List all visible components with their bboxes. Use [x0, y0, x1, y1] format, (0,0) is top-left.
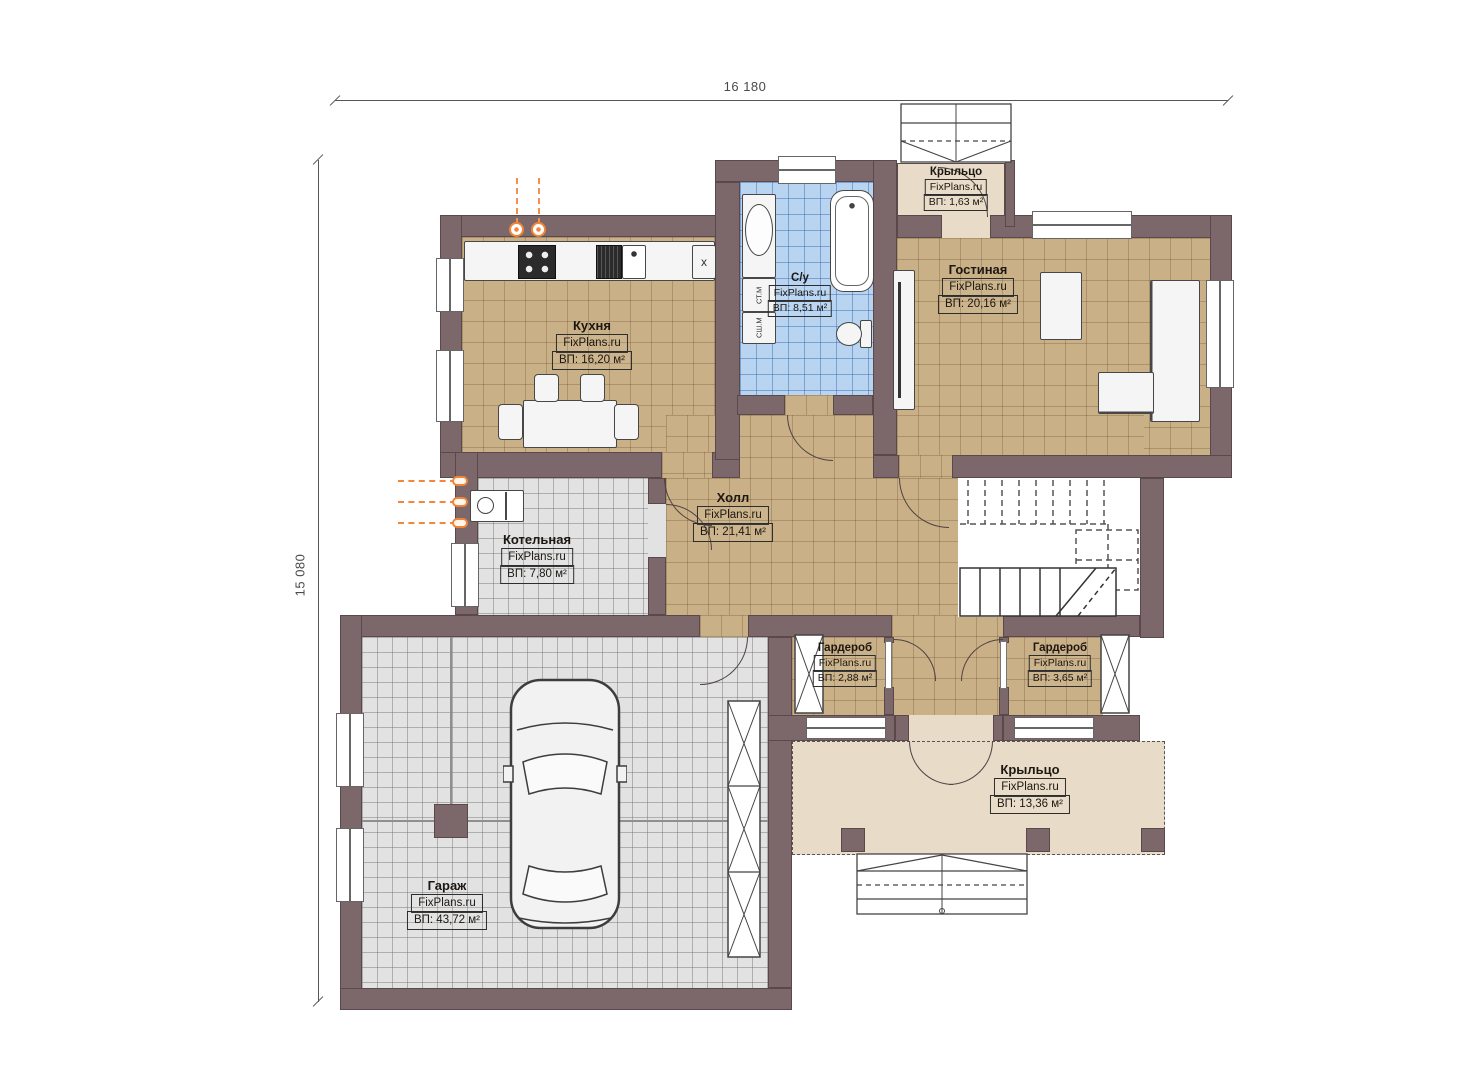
room-name: Крыльцо [930, 166, 982, 178]
wall [340, 615, 362, 1010]
window [436, 258, 464, 312]
dimension-height-label: 15 080 [293, 554, 308, 597]
watermark: FixPlans.ru [697, 506, 769, 525]
pendant-light [509, 222, 524, 237]
wall [1005, 160, 1015, 227]
room-name: Холл [717, 490, 750, 505]
wall [715, 182, 740, 460]
wall [440, 215, 737, 237]
window [806, 717, 886, 739]
porch-column [841, 828, 865, 852]
pendant-light-lead [516, 178, 518, 224]
room-name: Гостиная [949, 262, 1008, 277]
door-opening [785, 395, 833, 415]
sofa-chaise [1098, 372, 1154, 414]
boiler-dial [477, 497, 494, 514]
room-name: Гараж [428, 878, 467, 893]
watermark: FixPlans.ru [814, 655, 877, 672]
wall [768, 637, 792, 988]
room-area: ВП: 8,51 м² [768, 300, 832, 317]
pipe-socket [452, 518, 468, 528]
wall [884, 687, 894, 715]
sofa-section [1150, 280, 1200, 422]
bathtub-basin [835, 196, 869, 286]
counter-mark: x [701, 255, 707, 269]
pendant-light [531, 222, 546, 237]
room-label-wardrobe-right: Гардероб FixPlans.ru ВП: 3,65 м² [1028, 642, 1092, 687]
room-area: ВП: 13,36 м² [990, 795, 1070, 814]
chair [498, 404, 523, 440]
window [451, 543, 479, 607]
wall [993, 715, 1003, 741]
room-area: ВП: 7,80 м² [500, 565, 574, 584]
chair [534, 374, 559, 402]
toilet-bowl [836, 322, 862, 346]
watermark: FixPlans.ru [769, 285, 832, 302]
wall [895, 715, 909, 741]
room-label-wardrobe-left: Гардероб FixPlans.ru ВП: 2,88 м² [813, 642, 877, 687]
coffee-table [1040, 272, 1082, 340]
pipe-socket [452, 497, 468, 507]
watermark: FixPlans.ru [556, 334, 628, 353]
window [336, 828, 364, 902]
room-name: Кухня [573, 318, 611, 333]
room-label-boiler: Котельная FixPlans.ru ВП: 7,80 м² [500, 532, 574, 584]
wall [897, 215, 942, 238]
closet-unit [1100, 634, 1130, 714]
kitchen-sink [622, 245, 646, 279]
watermark: FixPlans.ru [411, 894, 483, 913]
wall [737, 395, 785, 415]
room-name: Котельная [503, 532, 571, 547]
room-label-porch-top: Крыльцо FixPlans.ru ВП: 1,63 м² [924, 166, 988, 211]
porch-column [1141, 828, 1165, 852]
pipe-socket [452, 476, 468, 486]
dish-rack [596, 245, 622, 279]
room-area: ВП: 2,88 м² [813, 670, 877, 687]
door-opening [942, 215, 990, 238]
wall [952, 455, 1232, 478]
room-label-kitchen: Кухня FixPlans.ru ВП: 16,20 м² [552, 318, 632, 370]
window [1206, 280, 1234, 388]
wall [340, 615, 700, 637]
window [436, 350, 464, 422]
room-label-living: Гостиная FixPlans.ru ВП: 20,16 м² [938, 262, 1018, 314]
room-area: ВП: 1,63 м² [924, 194, 988, 211]
dimension-line-top [335, 100, 1228, 101]
window [1014, 717, 1094, 739]
watermark: FixPlans.ru [925, 179, 988, 196]
dimension-line-left [318, 160, 319, 1002]
room-label-porch-bottom: Крыльцо FixPlans.ru ВП: 13,36 м² [990, 762, 1070, 814]
room-area: ВП: 43,72 м² [407, 911, 487, 930]
tv-console [893, 270, 915, 410]
wall [833, 395, 873, 415]
tv-screen [898, 282, 901, 398]
door-opening [648, 504, 666, 557]
wall [440, 215, 462, 468]
door-opening [899, 455, 952, 478]
boiler-divider [505, 492, 507, 520]
chair [614, 404, 639, 440]
watermark: FixPlans.ru [942, 278, 1014, 297]
pendant-light-lead [538, 178, 540, 224]
dryer-label: СШ.М [743, 313, 775, 343]
wall [1140, 478, 1164, 638]
room-area: ВП: 3,65 м² [1028, 670, 1092, 687]
wardrobe-left-door-leaf [885, 641, 892, 689]
window [778, 156, 836, 184]
porch-column [1026, 828, 1050, 852]
wardrobe-right-door-leaf [1000, 641, 1007, 689]
room-name: С/у [791, 272, 809, 284]
room-label-hall: Холл FixPlans.ru ВП: 21,41 м² [693, 490, 773, 542]
window [336, 713, 364, 787]
room-name: Гардероб [1033, 642, 1087, 654]
car-icon [503, 670, 627, 938]
window [1032, 211, 1132, 239]
room-area: ВП: 21,41 м² [693, 523, 773, 542]
watermark: FixPlans.ru [501, 548, 573, 567]
pipe-dashed [398, 522, 456, 524]
wall [873, 455, 899, 478]
door-opening [662, 452, 712, 478]
garage-shelving [727, 700, 761, 958]
staircase [958, 478, 1140, 618]
dining-table [523, 400, 617, 448]
garage-column [434, 804, 468, 838]
porch-top-steps [900, 103, 1012, 163]
bathroom-sink [745, 204, 773, 256]
pipe-dashed [398, 501, 456, 503]
room-area: ВП: 20,16 м² [938, 295, 1018, 314]
wall [999, 687, 1009, 715]
watermark: FixPlans.ru [1029, 655, 1092, 672]
wall [648, 557, 666, 615]
kitchen-counter [464, 241, 715, 281]
room-area: ВП: 16,20 м² [552, 351, 632, 370]
garage-floor-joint-v [450, 637, 452, 822]
dimension-width-label: 16 180 [724, 79, 767, 94]
porch-bottom-steps [856, 853, 1028, 915]
entry-door-opening [909, 715, 993, 741]
room-name: Крыльцо [1000, 762, 1059, 777]
pipe-dashed [398, 480, 456, 482]
counter-mark-box: x [692, 245, 716, 279]
room-label-bathroom: С/у FixPlans.ru ВП: 8,51 м² [768, 272, 832, 317]
chair [580, 374, 605, 402]
wall [340, 988, 792, 1010]
room-name: Гардероб [818, 642, 872, 654]
floor-plan-canvas: 16 180 15 080 [0, 0, 1473, 1080]
door-opening [700, 615, 748, 637]
room-label-garage: Гараж FixPlans.ru ВП: 43,72 м² [407, 878, 487, 930]
watermark: FixPlans.ru [994, 778, 1066, 797]
stove [518, 245, 556, 279]
